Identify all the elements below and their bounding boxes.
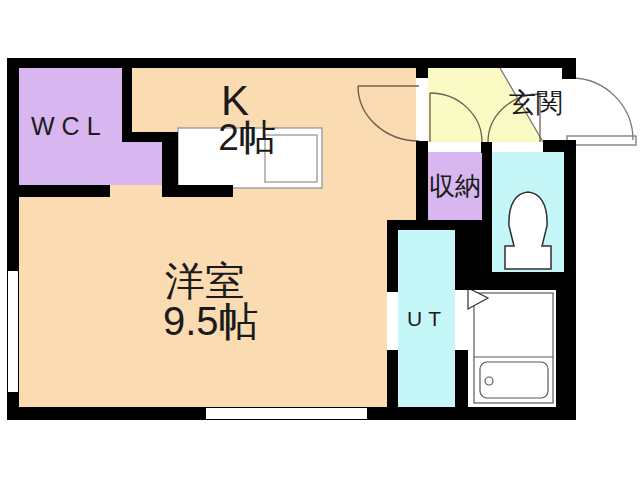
bathtub-icon [474,293,553,403]
wall-ut-left-upper [387,230,398,292]
wall-bath-top [455,272,576,290]
wall-wcl-bottom [7,185,110,197]
wall-bottom-right [368,407,576,420]
wall-right-bath [556,272,576,420]
wall-kitchen-bottom [162,185,233,197]
bathroom-door-marker [468,288,488,309]
window-bottom [205,407,368,420]
kitchen-door-opening [416,78,428,141]
wall-right-top-post [562,58,576,79]
kitchen-size-label: 2帖 [207,119,287,156]
toilet-icon [505,192,551,269]
front-door-swing-arc [567,78,636,145]
living-room-label: 洋室 [165,261,245,301]
wall-top [7,58,576,68]
window-left [7,270,19,393]
wcl-label: WCL [31,114,108,139]
wall-bottom-left [7,407,205,420]
entrance-label: 玄関 [496,90,576,117]
storage-door-swing-arc [430,93,482,142]
wall-left-upper [7,58,19,270]
kitchen-label: K [195,80,275,122]
living-room-size-label: 9.5帖 [163,301,259,341]
utility-label: UT [388,308,466,329]
living-room-door-swing-arc [358,86,419,141]
wall-counter-left [162,132,178,186]
wall-right-mid [564,140,576,280]
wall-wcl-kitchen [122,58,132,142]
wall-hall-south-east [543,140,576,152]
wall-bath-left-lower [455,350,468,408]
wall-ut-left-lower [387,350,398,408]
floor-plan: WCL K 2帖 洋室 9.5帖 玄関 収納 UT [0,0,640,480]
wall-kitchen-hall-stub [416,58,428,78]
storage-label: 収納 [415,173,495,199]
